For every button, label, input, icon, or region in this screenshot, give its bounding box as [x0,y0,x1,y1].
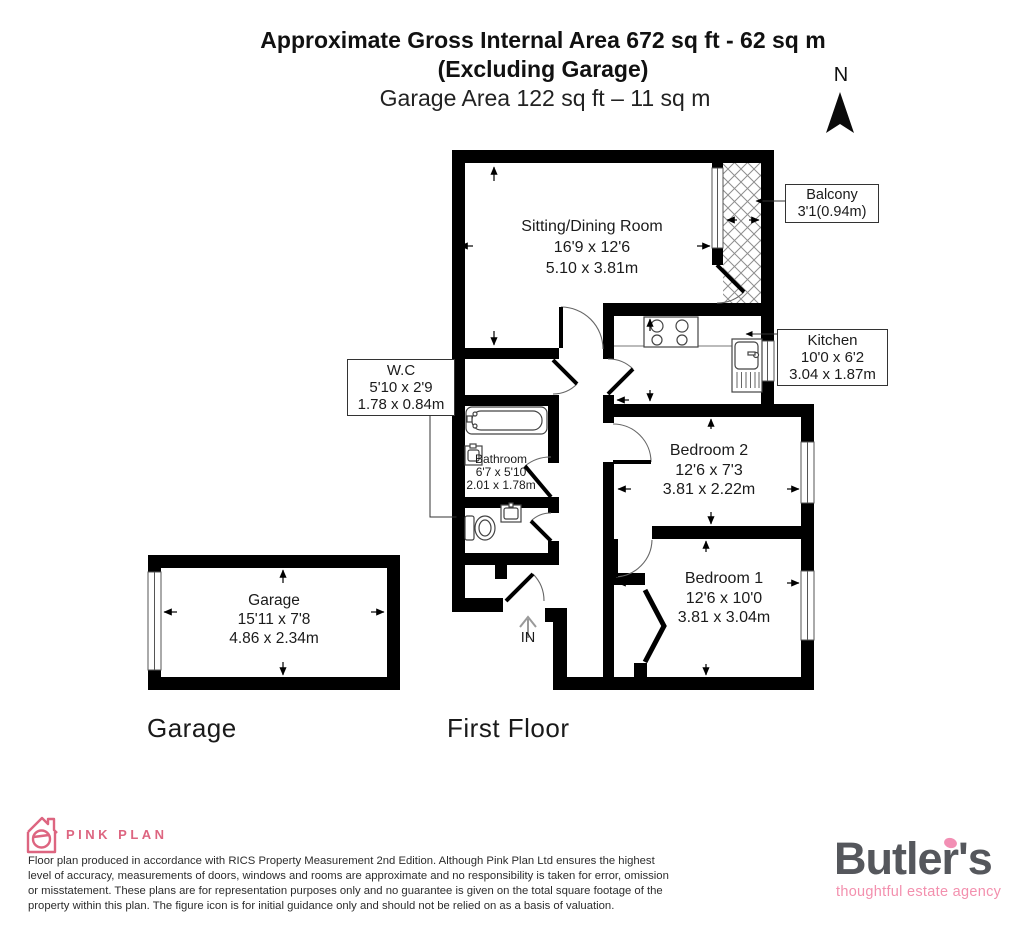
disclaimer-line: level of accuracy, measurements of doors… [28,869,669,884]
bifold-door-icon [645,590,664,662]
bathroom-label: Bathroom 6'7 x 5'10 2.01 x 1.78m [466,453,535,492]
in-label: IN [521,630,536,646]
wc-label-box: W.C 5'10 x 2'9 1.78 x 0.84m [347,359,455,416]
toilet-icon [465,516,495,540]
kitchen-sink-icon [732,339,762,392]
bathtub-icon [466,407,547,434]
disclaimer-line: or misstatement. These plans are for rep… [28,884,669,899]
floor-plan-drawing [0,0,1024,780]
disclaimer-line: Floor plan produced in accordance with R… [28,854,669,869]
first-floor-caption: First Floor [447,713,570,744]
butlers-tagline: thoughtful estate agency [836,884,1001,900]
pinkplan-brand: PINK PLAN [66,827,168,842]
sitting-room-label: Sitting/Dining Room 16'9 x 12'6 5.10 x 3… [521,216,662,279]
disclaimer-line: property within this plan. The figure ic… [28,899,669,914]
balcony-hatch [723,163,761,303]
bedroom2-label: Bedroom 2 12'6 x 7'3 3.81 x 2.22m [663,441,756,500]
north-arrow-icon [826,92,854,133]
wc-sink-icon [501,503,521,522]
garage-floor-caption: Garage [147,713,237,744]
bedroom1-label: Bedroom 1 12'6 x 10'0 3.81 x 3.04m [678,569,771,628]
hob-icon [644,317,698,347]
kitchen-label-box: Kitchen 10'0 x 6'2 3.04 x 1.87m [777,329,888,386]
garage-room-label: Garage 15'11 x 7'8 4.86 x 2.34m [229,591,319,648]
butlers-logo: Butler's [834,833,992,885]
balcony-label-box: Balcony 3'1(0.94m) [785,184,879,223]
disclaimer: Floor plan produced in accordance with R… [28,854,669,914]
floorplan-page: Approximate Gross Internal Area 672 sq f… [0,0,1024,928]
pinkplan-logo-icon [24,812,62,856]
